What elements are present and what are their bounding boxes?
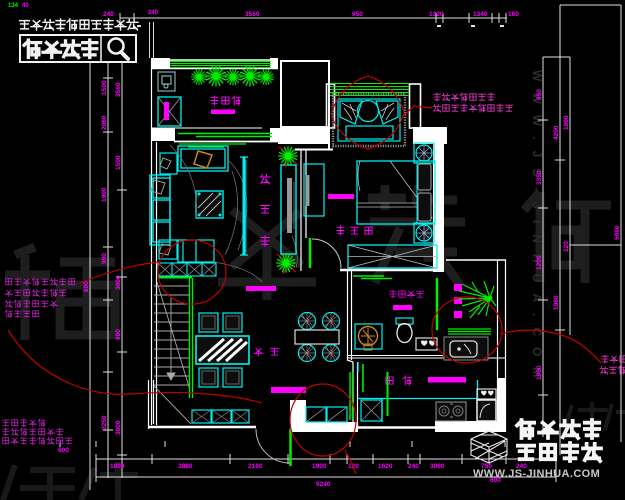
svg-text:850: 850 bbox=[536, 89, 543, 100]
svg-text:3060: 3060 bbox=[430, 463, 445, 470]
svg-text:WWW.JS-JINHUA.COM: WWW.JS-JINHUA.COM bbox=[473, 468, 600, 480]
svg-text:1320: 1320 bbox=[429, 11, 444, 18]
svg-text:1200: 1200 bbox=[536, 255, 543, 270]
svg-text:3550: 3550 bbox=[245, 11, 260, 18]
svg-text:600: 600 bbox=[83, 281, 90, 292]
svg-text:2060: 2060 bbox=[101, 115, 108, 130]
svg-text:1900: 1900 bbox=[101, 187, 108, 202]
svg-text:600: 600 bbox=[58, 447, 69, 454]
svg-text:1900: 1900 bbox=[536, 365, 543, 380]
svg-text:3000: 3000 bbox=[115, 420, 122, 435]
svg-text:240: 240 bbox=[408, 463, 419, 470]
svg-text:980: 980 bbox=[115, 329, 122, 340]
svg-text:1980: 1980 bbox=[553, 295, 560, 310]
svg-text:3880: 3880 bbox=[178, 463, 193, 470]
svg-text:1620: 1620 bbox=[378, 463, 393, 470]
svg-text:240: 240 bbox=[148, 10, 159, 16]
svg-text:2250: 2250 bbox=[101, 415, 108, 430]
svg-text:5080: 5080 bbox=[614, 225, 621, 240]
svg-text:WWW.JS-JINHUA.COM: WWW.JS-JINHUA.COM bbox=[530, 70, 544, 388]
svg-text:4200: 4200 bbox=[553, 125, 560, 140]
svg-text:3350: 3350 bbox=[536, 170, 543, 185]
svg-text:160: 160 bbox=[508, 11, 519, 18]
svg-text:1800: 1800 bbox=[563, 115, 570, 130]
svg-text:1500: 1500 bbox=[101, 80, 108, 95]
svg-text:240: 240 bbox=[103, 11, 114, 18]
svg-text:40: 40 bbox=[22, 3, 29, 9]
svg-text:3000: 3000 bbox=[115, 275, 122, 290]
svg-text:120: 120 bbox=[563, 241, 570, 252]
svg-text:2160: 2160 bbox=[248, 463, 263, 470]
svg-text:134: 134 bbox=[8, 3, 19, 9]
svg-text:1800: 1800 bbox=[110, 463, 125, 470]
svg-text:1500: 1500 bbox=[115, 155, 122, 170]
svg-text:1900: 1900 bbox=[312, 463, 327, 470]
svg-text:900: 900 bbox=[101, 253, 108, 264]
svg-text:9240: 9240 bbox=[316, 481, 331, 488]
svg-text:1340: 1340 bbox=[473, 11, 488, 18]
svg-text:3560: 3560 bbox=[115, 82, 122, 97]
svg-text:950: 950 bbox=[352, 11, 363, 18]
